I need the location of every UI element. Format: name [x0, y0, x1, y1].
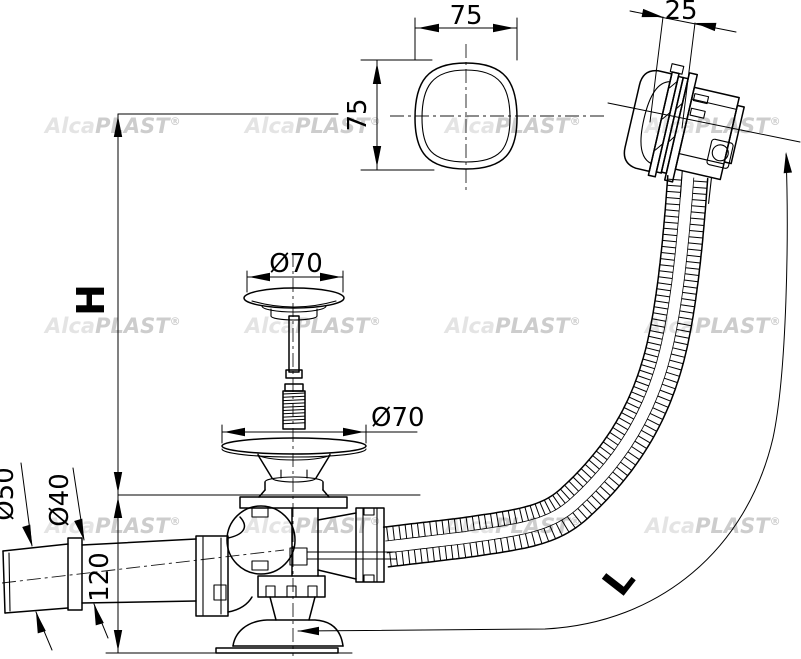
- dim-install-height: H: [69, 284, 113, 316]
- thread-line: [283, 413, 305, 414]
- dimension-arrow: [114, 472, 122, 493]
- dim-outlet-outer-diameter: Ø50: [0, 467, 20, 521]
- dimension-arrow: [32, 611, 46, 634]
- dim-cover-height: 75: [343, 98, 373, 131]
- dimension-arrow: [642, 9, 664, 21]
- dimension-arrow: [418, 24, 439, 32]
- dimension-arrow: [90, 603, 104, 626]
- dim-hose-length: L: [594, 558, 644, 604]
- thread-line: [283, 403, 305, 404]
- thread-line: [283, 419, 305, 420]
- thread-line: [283, 396, 305, 397]
- dim-drain-body-height: 120: [85, 552, 115, 602]
- brand-watermark: AlcaPLAST®: [43, 114, 181, 138]
- dimension-arrow: [114, 630, 122, 651]
- dimension-arrow: [373, 146, 381, 167]
- drain-plug-assembly: [244, 288, 344, 429]
- brand-watermark: AlcaPLAST®: [43, 314, 181, 338]
- thread-line: [283, 423, 305, 424]
- technical-drawing-canvas: AlcaPLAST®AlcaPLAST®AlcaPLAST®AlcaPLAST®…: [0, 0, 801, 659]
- dim-outlet-inner-diameter: Ø40: [45, 473, 75, 527]
- brand-watermark: AlcaPLAST®: [243, 314, 381, 338]
- dimension-arrow: [782, 152, 792, 174]
- dimension-arrow: [298, 627, 319, 635]
- outlet-axis-centerline: [2, 550, 284, 583]
- dim-overflow-cap-depth: 25: [664, 0, 697, 26]
- corrugated-overflow-hose: [384, 174, 708, 567]
- thread-line: [283, 400, 305, 401]
- dim-strainer-diameter: Ø70: [371, 403, 425, 433]
- brand-watermark: AlcaPLAST®: [243, 514, 381, 538]
- thread-line: [283, 406, 305, 407]
- dim-plug-diameter: Ø70: [269, 249, 323, 279]
- thread-lines: [283, 393, 305, 424]
- dim-cover-width: 75: [449, 1, 482, 31]
- thread-line: [283, 410, 305, 411]
- waste-drain-body: [214, 438, 396, 653]
- thread-line: [283, 416, 305, 417]
- thread-line: [283, 393, 305, 394]
- dimension-arrow: [320, 273, 341, 281]
- technical-drawing: AlcaPLAST®AlcaPLAST®AlcaPLAST®AlcaPLAST®…: [0, 0, 801, 659]
- dimension-arrow: [493, 24, 514, 32]
- dimension-arrow: [224, 428, 245, 436]
- brand-watermark-layer: AlcaPLAST®AlcaPLAST®AlcaPLAST®AlcaPLAST®…: [43, 114, 781, 538]
- dimension-arrow: [114, 497, 122, 518]
- dimension-arrow: [249, 273, 270, 281]
- dimension-arrow: [343, 428, 364, 436]
- brand-watermark: AlcaPLAST®: [643, 514, 781, 538]
- brand-watermark: AlcaPLAST®: [443, 114, 581, 138]
- brand-watermark: AlcaPLAST®: [443, 314, 581, 338]
- dimension-arrow: [22, 525, 36, 548]
- dimension-arrow: [373, 63, 381, 84]
